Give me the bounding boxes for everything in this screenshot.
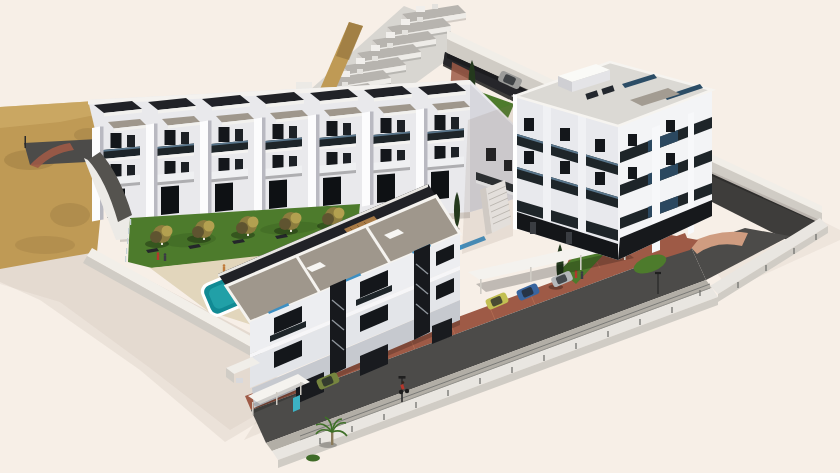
architectural-render xyxy=(0,0,840,473)
render-canvas xyxy=(0,0,840,473)
stair-core xyxy=(414,244,430,340)
bush xyxy=(306,455,320,462)
stair-core xyxy=(330,279,346,376)
